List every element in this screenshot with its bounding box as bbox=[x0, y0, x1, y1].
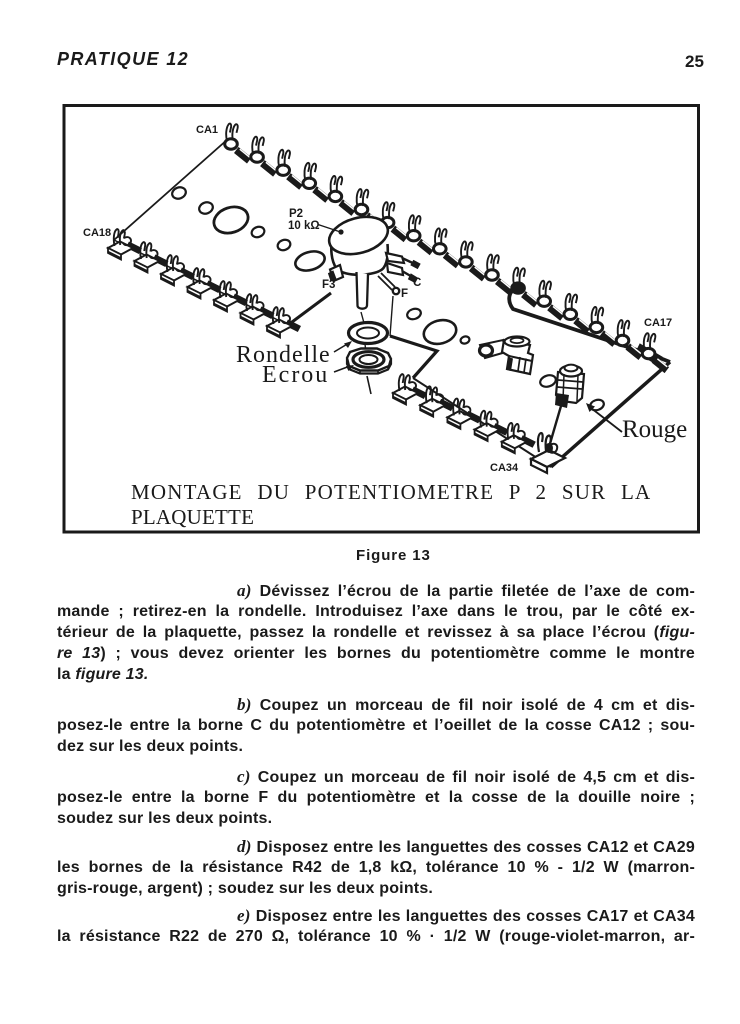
svg-text:10 kΩ: 10 kΩ bbox=[288, 220, 320, 232]
svg-text:PLAQUETTE: PLAQUETTE bbox=[131, 505, 254, 529]
svg-text:CA18: CA18 bbox=[83, 227, 111, 239]
svg-text:CA17: CA17 bbox=[644, 317, 672, 329]
svg-text:F: F bbox=[401, 288, 408, 300]
svg-text:CA34: CA34 bbox=[490, 462, 519, 474]
svg-text:Ecrou: Ecrou bbox=[262, 362, 329, 388]
svg-text:C: C bbox=[413, 277, 421, 289]
svg-text:CA1: CA1 bbox=[196, 124, 218, 136]
svg-text:Rouge: Rouge bbox=[622, 416, 687, 443]
svg-text:P2: P2 bbox=[289, 208, 303, 220]
svg-text:MONTAGE DU POTENTIOMETRE P 2 S: MONTAGE DU POTENTIOMETRE P 2 SUR LA bbox=[131, 480, 651, 504]
svg-text:F3: F3 bbox=[322, 279, 335, 291]
